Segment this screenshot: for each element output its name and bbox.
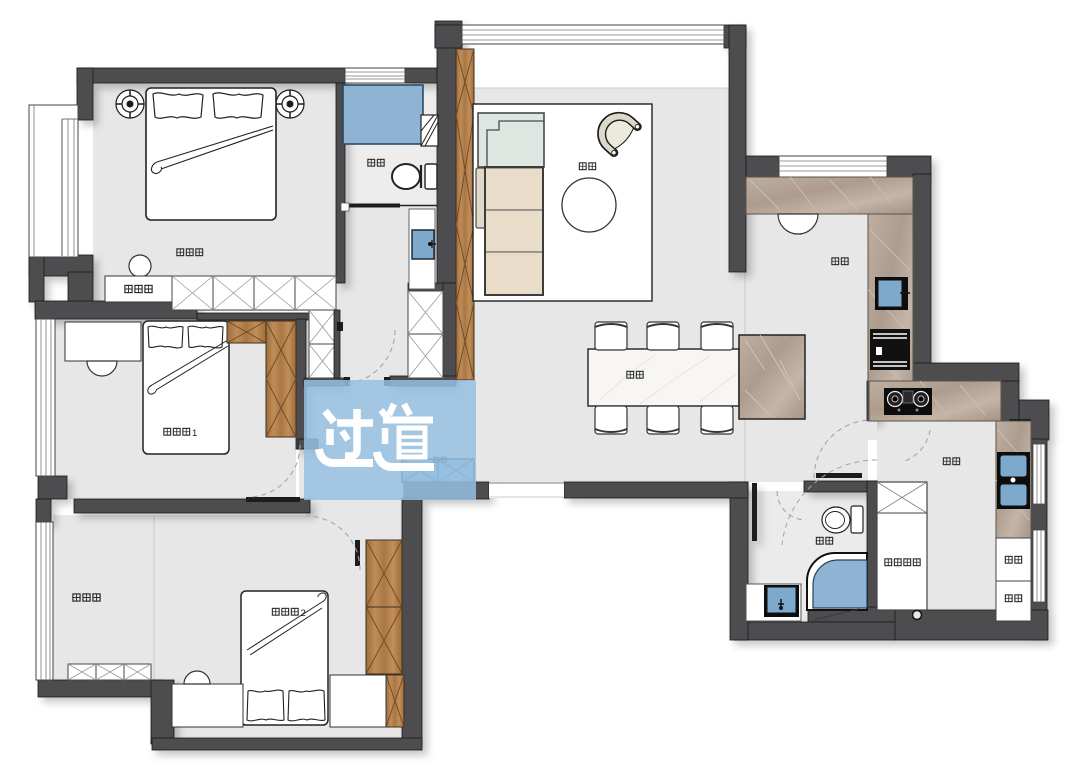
svg-text:1: 1 <box>192 428 197 439</box>
svg-text:2: 2 <box>301 608 306 619</box>
